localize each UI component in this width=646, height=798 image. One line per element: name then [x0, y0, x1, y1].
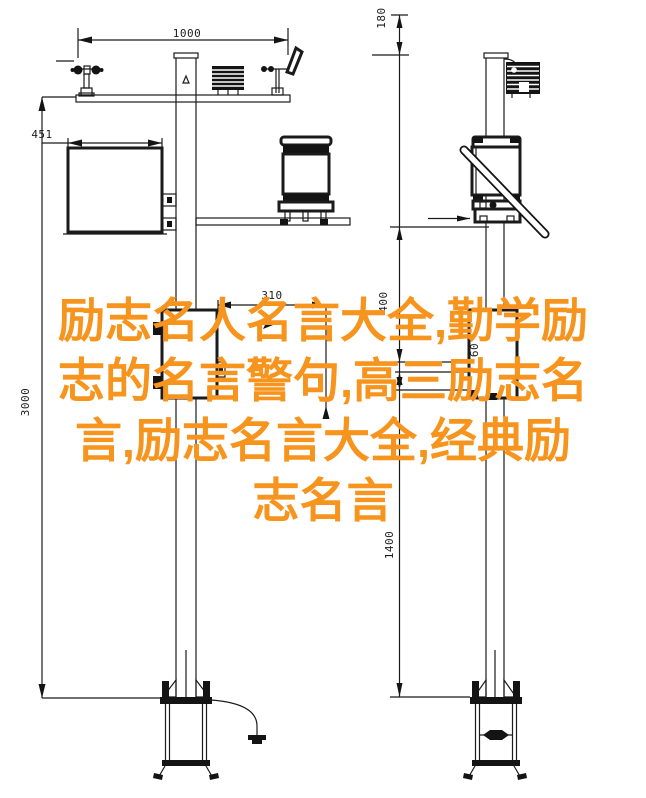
turnbuckle	[483, 730, 509, 740]
dimension-box-width: 451	[31, 128, 162, 149]
dim-label-1400: 1400	[383, 531, 396, 560]
radiation-shield-side-icon	[504, 59, 540, 98]
dim-label-1000: 1000	[173, 27, 202, 40]
overlay-quote-text: 励志名人名言大全,勤学励 志的名言警句,高三励志名 言,励志名言大全,经典励 志…	[0, 291, 646, 531]
rain-gauge	[196, 137, 350, 225]
hand-hole-mark	[183, 76, 189, 83]
overlay-line-2: 志的名言警句,高三励志名	[0, 351, 646, 411]
solar-panel-box	[63, 148, 176, 234]
overlay-line-4: 志名言	[0, 471, 646, 531]
anemometer-icon	[71, 66, 104, 97]
wind-vane-icon	[261, 48, 302, 95]
overlay-line-3: 言,励志名言大全,经典励	[0, 411, 646, 471]
overlay-line-1: 励志名人名言大全,勤学励	[0, 291, 646, 351]
base-foundation-front	[153, 680, 266, 780]
radiation-shield-icon	[212, 66, 244, 95]
conduit-pipe	[211, 700, 257, 735]
crossarm	[76, 95, 290, 102]
screenshot-canvas: 1000 451 3000	[0, 0, 646, 798]
dim-label-180: 180	[375, 7, 388, 28]
